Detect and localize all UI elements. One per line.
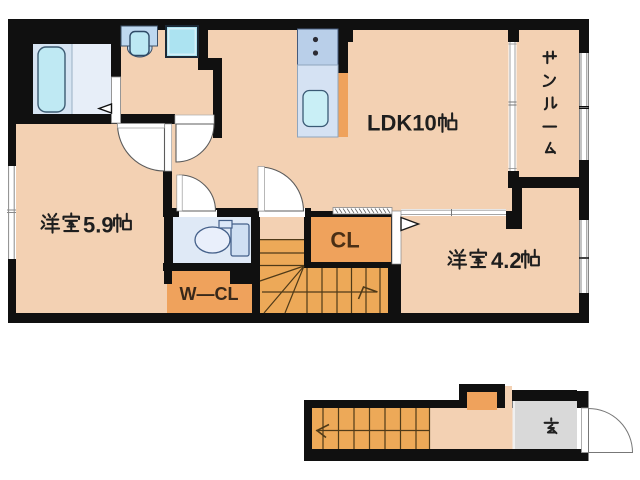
svg-text:CL: CL <box>330 228 359 253</box>
svg-text:W—CL: W—CL <box>180 284 239 304</box>
svg-text:5.9: 5.9 <box>83 213 114 238</box>
svg-text:4.2: 4.2 <box>491 248 522 273</box>
svg-text:LDK10: LDK10 <box>367 111 437 136</box>
